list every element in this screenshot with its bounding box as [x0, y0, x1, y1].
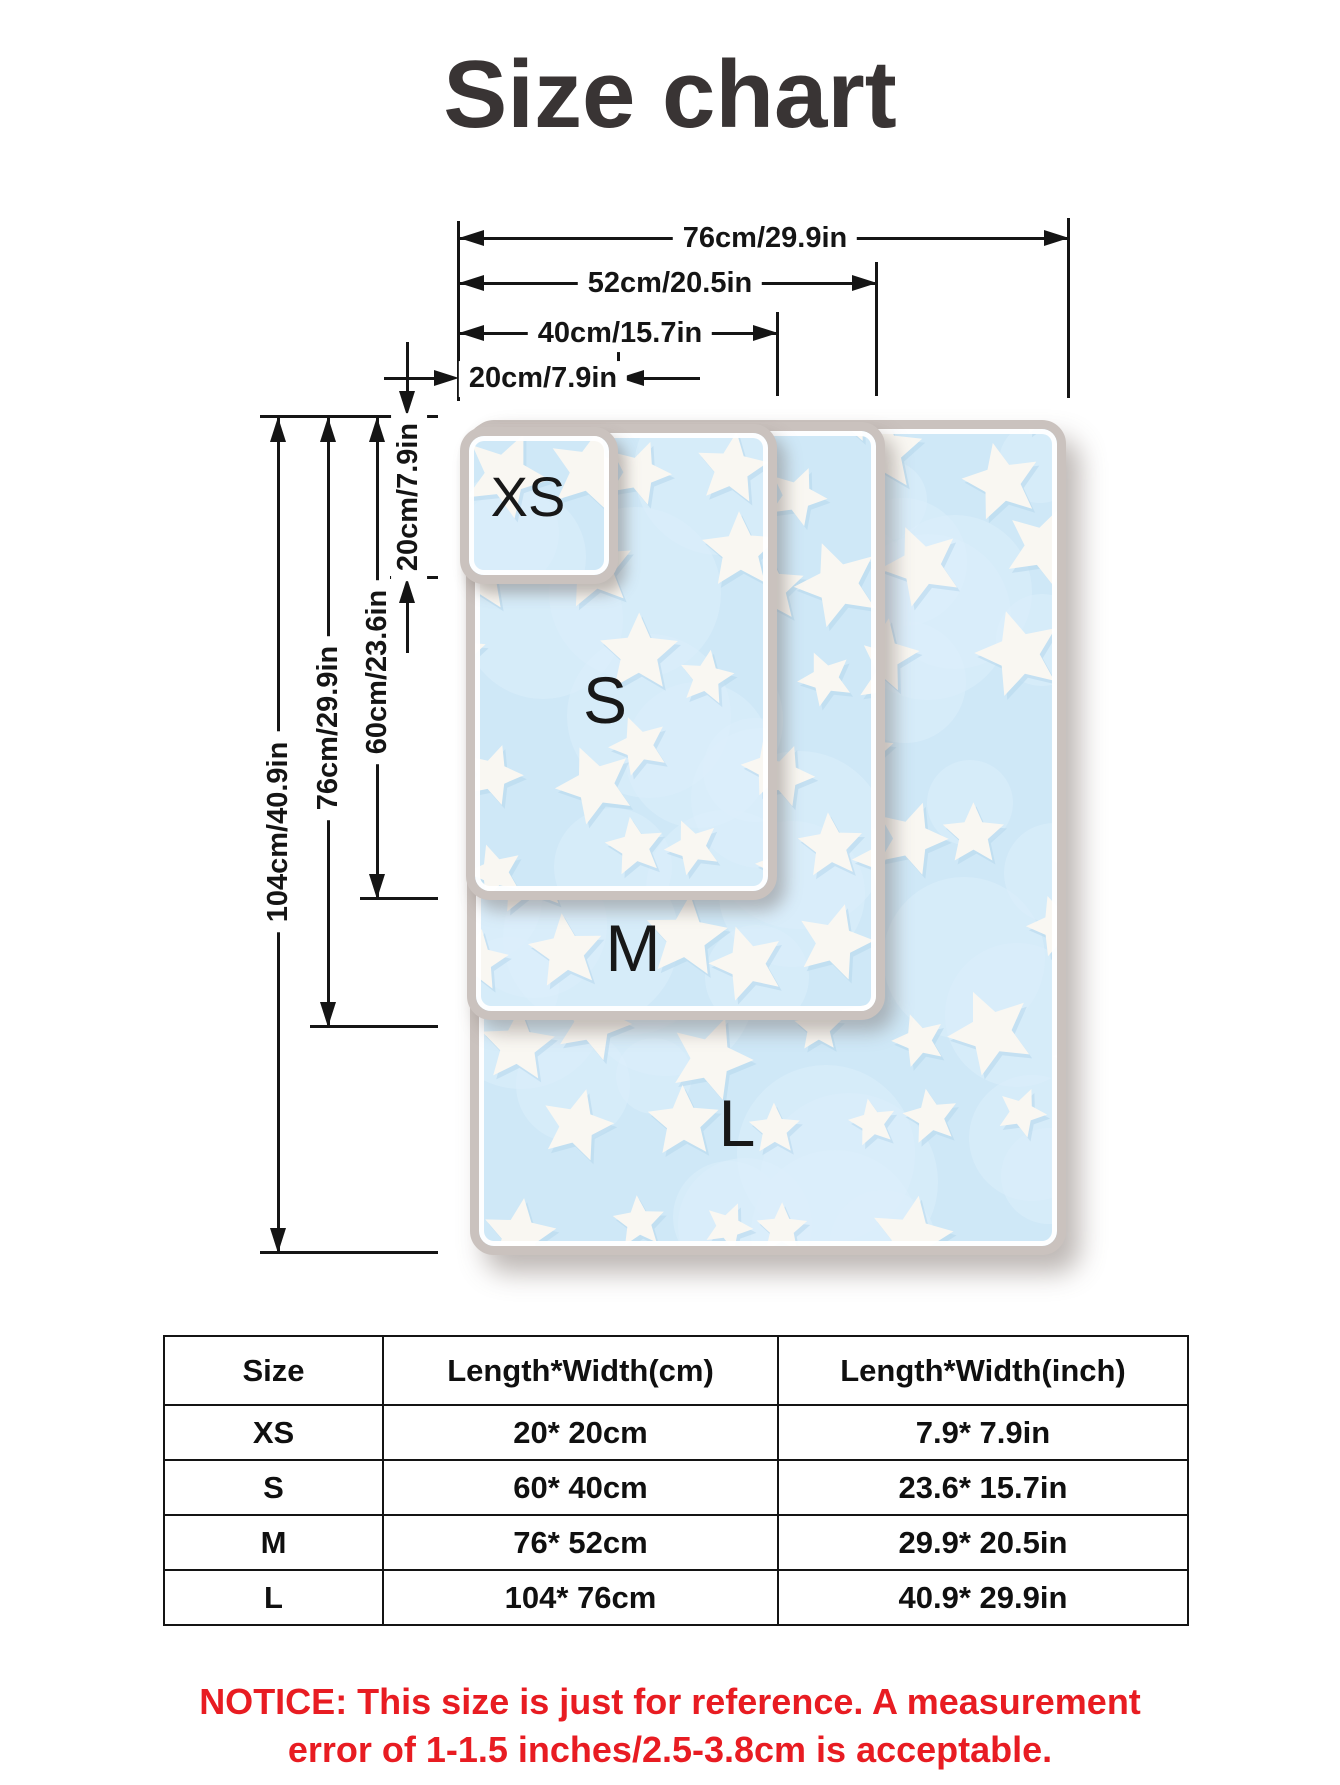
- blanket-label-xs: XS: [491, 469, 566, 525]
- dim-arrow: [270, 417, 286, 442]
- dim-arrow: [399, 578, 415, 603]
- dim-tick: [260, 1251, 438, 1254]
- dim-arrow: [852, 275, 877, 291]
- dim-arrow: [459, 275, 484, 291]
- dim-line-width-20: [384, 377, 436, 380]
- table-cell: M: [164, 1515, 383, 1570]
- table-cell: 60* 40cm: [383, 1460, 778, 1515]
- notice-text: NOTICE: This size is just for reference.…: [0, 1678, 1340, 1773]
- table-cell: 29.9* 20.5in: [778, 1515, 1188, 1570]
- column-header-size: Size: [164, 1336, 383, 1405]
- table-row: M76* 52cm29.9* 20.5in: [164, 1515, 1188, 1570]
- dim-tick: [310, 1025, 438, 1028]
- dim-arrow: [270, 1228, 286, 1253]
- dim-tick: [776, 312, 779, 396]
- notice-line-2: error of 1-1.5 inches/2.5-3.8cm is accep…: [288, 1729, 1052, 1770]
- table-cell: L: [164, 1570, 383, 1625]
- dim-arrow: [369, 874, 385, 899]
- column-header-cm: Length*Width(cm): [383, 1336, 778, 1405]
- table-cell: 104* 76cm: [383, 1570, 778, 1625]
- dim-tick: [875, 262, 878, 396]
- dim-label-width-20: 20cm/7.9in: [459, 361, 627, 397]
- table-row: L104* 76cm40.9* 29.9in: [164, 1570, 1188, 1625]
- blanket-label-m: M: [606, 915, 661, 981]
- table-cell: 20* 20cm: [383, 1405, 778, 1460]
- table-row: S60* 40cm23.6* 15.7in: [164, 1460, 1188, 1515]
- blanket-label-s: S: [583, 667, 627, 733]
- dim-label-height-76: 76cm/29.9in: [311, 636, 347, 820]
- dim-tick: [360, 897, 438, 900]
- dim-arrow: [369, 417, 385, 442]
- dim-label-height-60: 60cm/23.6in: [360, 580, 396, 764]
- dim-arrow: [434, 370, 459, 386]
- dim-label-height-20: 20cm/7.9in: [391, 413, 427, 581]
- dim-arrow: [320, 1002, 336, 1027]
- dim-label-width-52: 52cm/20.5in: [578, 266, 762, 302]
- table-cell: 7.9* 7.9in: [778, 1405, 1188, 1460]
- dim-label-width-40: 40cm/15.7in: [528, 316, 712, 352]
- dim-arrow: [1044, 230, 1069, 246]
- column-header-inch: Length*Width(inch): [778, 1336, 1188, 1405]
- dim-arrow: [753, 325, 778, 341]
- dim-line-height-20: [406, 342, 409, 392]
- dim-tick: [1067, 218, 1070, 398]
- table-cell: 40.9* 29.9in: [778, 1570, 1188, 1625]
- size-chart-page: Size chart XS S M L 76cm/29.9in: [0, 0, 1340, 1785]
- dim-line-width-20: [644, 377, 700, 380]
- dim-line-height-20: [406, 603, 409, 653]
- dim-label-width-76: 76cm/29.9in: [673, 221, 857, 257]
- size-table-body: XS20* 20cm7.9* 7.9inS60* 40cm23.6* 15.7i…: [164, 1405, 1188, 1625]
- dim-label-height-104: 104cm/40.9in: [261, 732, 297, 933]
- table-row: XS20* 20cm7.9* 7.9in: [164, 1405, 1188, 1460]
- table-cell: S: [164, 1460, 383, 1515]
- size-table: Size Length*Width(cm) Length*Width(inch)…: [163, 1335, 1189, 1626]
- notice-line-1: NOTICE: This size is just for reference.…: [199, 1681, 1141, 1722]
- blanket-label-l: L: [719, 1090, 756, 1156]
- table-header-row: Size Length*Width(cm) Length*Width(inch): [164, 1336, 1188, 1405]
- table-cell: XS: [164, 1405, 383, 1460]
- dim-arrow: [459, 230, 484, 246]
- table-cell: 76* 52cm: [383, 1515, 778, 1570]
- table-cell: 23.6* 15.7in: [778, 1460, 1188, 1515]
- dim-arrow: [320, 417, 336, 442]
- dim-arrow: [459, 325, 484, 341]
